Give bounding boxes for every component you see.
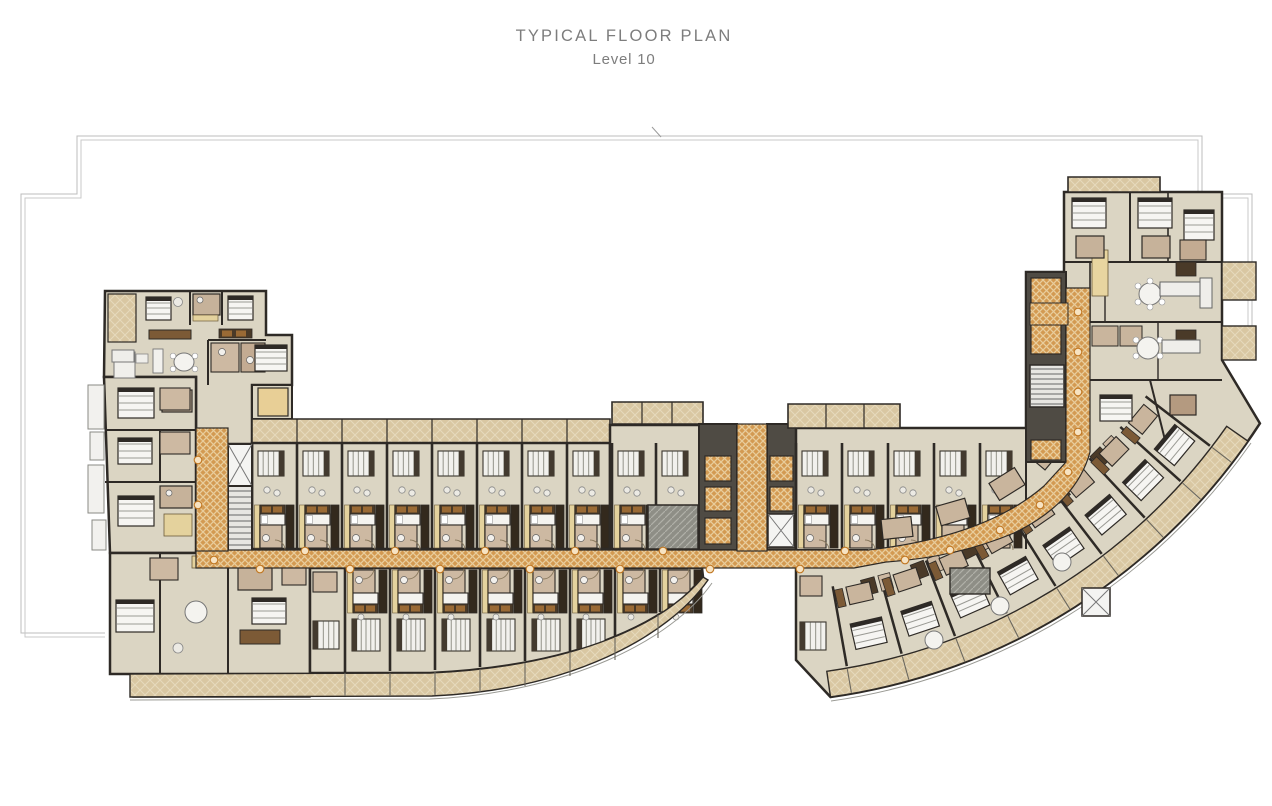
svg-text:Level 10: Level 10 bbox=[592, 51, 655, 68]
svg-text:TYPICAL FLOOR PLAN: TYPICAL FLOOR PLAN bbox=[516, 27, 733, 45]
